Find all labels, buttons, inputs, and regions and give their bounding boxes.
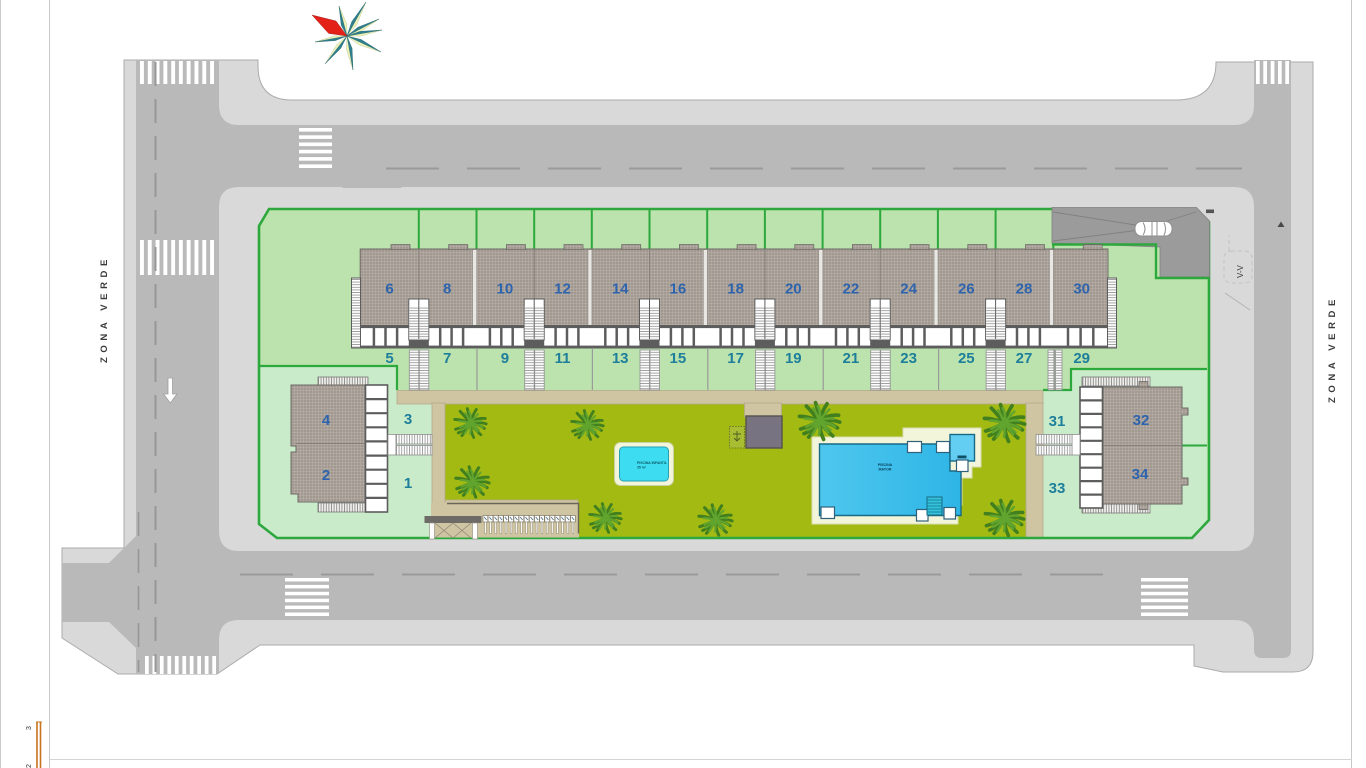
svg-text:5: 5 xyxy=(385,350,393,367)
svg-text:20: 20 xyxy=(785,281,802,298)
svg-text:10: 10 xyxy=(497,281,514,298)
svg-text:2: 2 xyxy=(26,764,33,768)
svg-text:32: 32 xyxy=(1133,412,1150,429)
svg-text:ZONA VERDE: ZONA VERDE xyxy=(1327,295,1338,403)
svg-text:1: 1 xyxy=(404,475,412,492)
svg-text:V-V: V-V xyxy=(1236,264,1245,278)
svg-text:7: 7 xyxy=(443,350,451,367)
svg-text:18: 18 xyxy=(727,281,744,298)
svg-text:11: 11 xyxy=(555,350,571,367)
svg-text:21: 21 xyxy=(843,350,860,367)
svg-text:31: 31 xyxy=(1049,413,1066,430)
svg-text:25: 25 xyxy=(958,350,975,367)
svg-text:3: 3 xyxy=(404,411,412,428)
svg-text:26: 26 xyxy=(958,281,975,298)
svg-text:24: 24 xyxy=(900,281,917,298)
svg-text:12: 12 xyxy=(554,281,571,298)
svg-text:3: 3 xyxy=(26,726,33,730)
svg-text:13: 13 xyxy=(612,350,629,367)
svg-text:27: 27 xyxy=(1016,350,1033,367)
svg-text:4: 4 xyxy=(322,412,331,429)
svg-text:30: 30 xyxy=(1073,281,1090,298)
svg-text:33: 33 xyxy=(1049,480,1066,497)
svg-text:19: 19 xyxy=(785,350,802,367)
svg-text:ZONA VERDE: ZONA VERDE xyxy=(99,255,110,363)
svg-text:9: 9 xyxy=(501,350,509,367)
svg-text:PISCINA INFANTIL: PISCINA INFANTIL xyxy=(637,461,667,465)
svg-text:2: 2 xyxy=(322,467,330,484)
svg-text:29: 29 xyxy=(1073,350,1090,367)
svg-text:34: 34 xyxy=(1132,466,1149,483)
svg-text:MAYOR: MAYOR xyxy=(878,468,891,472)
svg-text:16: 16 xyxy=(670,281,687,298)
svg-text:15: 15 xyxy=(670,350,687,367)
svg-text:14: 14 xyxy=(612,281,629,298)
svg-text:PISCINA: PISCINA xyxy=(878,463,893,467)
svg-text:8: 8 xyxy=(443,281,451,298)
svg-text:6: 6 xyxy=(385,281,393,298)
svg-text:35 m²: 35 m² xyxy=(637,465,647,469)
svg-text:17: 17 xyxy=(727,350,744,367)
svg-text:23: 23 xyxy=(900,350,917,367)
svg-text:22: 22 xyxy=(843,281,860,298)
svg-text:28: 28 xyxy=(1016,281,1033,298)
